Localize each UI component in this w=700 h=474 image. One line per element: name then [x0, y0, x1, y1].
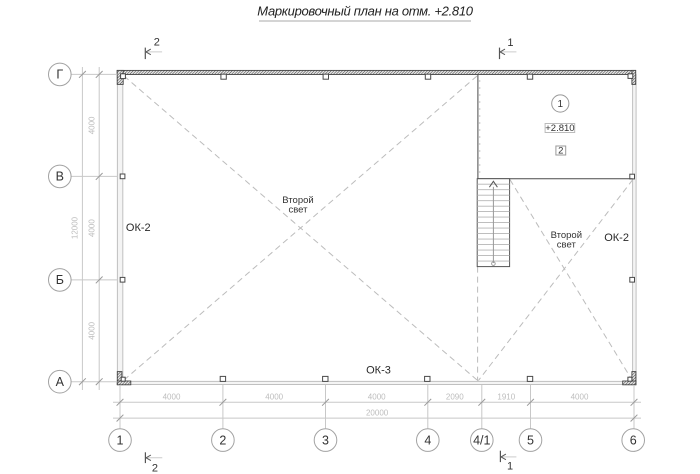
svg-text:12000: 12000 — [71, 216, 80, 239]
svg-text:ОК-3: ОК-3 — [366, 364, 391, 376]
svg-text:1: 1 — [117, 433, 124, 447]
svg-text:ОК-2: ОК-2 — [604, 232, 629, 244]
svg-text:1: 1 — [507, 460, 513, 472]
svg-text:4000: 4000 — [88, 116, 97, 134]
svg-text:3: 3 — [322, 433, 329, 447]
svg-text:1: 1 — [507, 37, 513, 49]
svg-text:4: 4 — [424, 433, 431, 447]
svg-text:2: 2 — [152, 462, 158, 474]
svg-text:20000: 20000 — [366, 408, 389, 417]
svg-text:4000: 4000 — [368, 392, 386, 401]
svg-text:4000: 4000 — [163, 392, 181, 401]
svg-text:2: 2 — [219, 433, 226, 447]
svg-text:2: 2 — [154, 37, 160, 49]
svg-text:Б: Б — [56, 273, 64, 287]
svg-text:1: 1 — [558, 99, 564, 110]
svg-text:4000: 4000 — [88, 321, 97, 339]
svg-text:4000: 4000 — [88, 219, 97, 237]
svg-text:ОК-2: ОК-2 — [126, 222, 151, 234]
svg-text:Г: Г — [56, 68, 63, 82]
svg-text:2: 2 — [558, 146, 563, 157]
svg-text:4/1: 4/1 — [473, 433, 490, 447]
svg-text:свет: свет — [557, 239, 577, 250]
svg-text:А: А — [56, 375, 65, 389]
svg-text:+2.810: +2.810 — [545, 123, 574, 134]
svg-text:свет: свет — [288, 205, 308, 216]
svg-text:В: В — [56, 170, 64, 184]
svg-text:5: 5 — [527, 433, 534, 447]
svg-text:1910: 1910 — [497, 392, 515, 401]
svg-text:Маркировочный план на отм. +2.: Маркировочный план на отм. +2.810 — [257, 4, 474, 19]
svg-text:4000: 4000 — [571, 392, 589, 401]
svg-text:4000: 4000 — [265, 392, 283, 401]
svg-text:6: 6 — [630, 433, 637, 447]
svg-text:2090: 2090 — [446, 392, 464, 401]
